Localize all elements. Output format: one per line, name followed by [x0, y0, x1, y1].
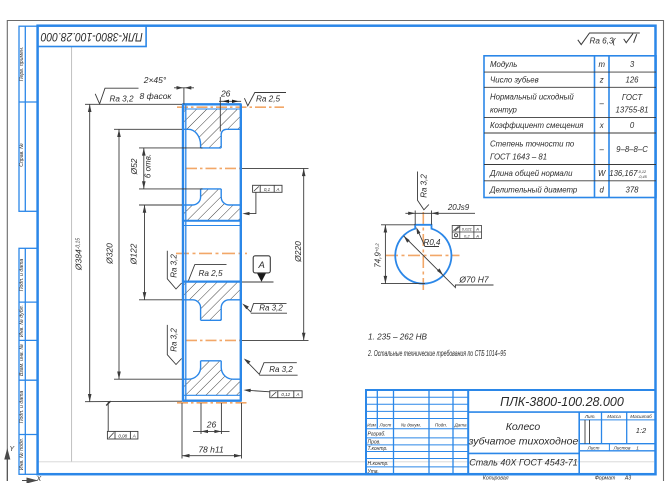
svg-text:Ra 3,2: Ra 3,2 [170, 328, 179, 352]
svg-text:Лист: Лист [587, 445, 600, 450]
svg-text:X: X [36, 476, 42, 483]
svg-text:378: 378 [625, 186, 639, 195]
svg-text:Дата: Дата [453, 422, 467, 427]
svg-text:6 отв.: 6 отв. [144, 154, 153, 178]
svg-text:26: 26 [220, 89, 231, 99]
svg-text:Утв.: Утв. [368, 469, 379, 475]
svg-text:Листов: Листов [613, 445, 631, 450]
svg-text:Коэффициент смещения: Коэффициент смещения [490, 121, 584, 130]
svg-text:9–8–8–С: 9–8–8–С [616, 145, 648, 154]
svg-text:Н.контр.: Н.контр. [368, 461, 389, 467]
svg-text:20Js9: 20Js9 [447, 203, 470, 212]
svg-text:3: 3 [630, 60, 635, 69]
svg-text:А: А [295, 392, 299, 397]
svg-text:А: А [258, 260, 265, 271]
svg-text:R0,4: R0,4 [424, 238, 441, 247]
svg-text:Нормальный исходный: Нормальный исходный [490, 93, 574, 102]
svg-text:№ докум.: № докум. [401, 422, 421, 427]
svg-text:ПЛК-3800-100.28.000: ПЛК-3800-100.28.000 [500, 395, 624, 409]
svg-text:Формат: Формат [595, 476, 616, 482]
svg-text:8 фасок: 8 фасок [140, 91, 173, 101]
svg-text:контур: контур [490, 106, 518, 115]
svg-text:m: m [598, 60, 605, 69]
svg-text:26: 26 [206, 420, 217, 430]
svg-text:–: – [599, 99, 605, 108]
svg-text:2. Остальные технические требо: 2. Остальные технические требования по С… [367, 349, 506, 358]
svg-text:78 h11: 78 h11 [198, 445, 224, 455]
svg-text:Ra 3,2: Ra 3,2 [269, 365, 293, 374]
svg-text:Подп.: Подп. [435, 422, 447, 427]
svg-text:Ra 3,2: Ra 3,2 [109, 95, 134, 104]
svg-text:Ø220: Ø220 [293, 241, 303, 263]
svg-text:0,12: 0,12 [281, 392, 290, 397]
svg-text:А: А [475, 227, 479, 232]
svg-text:2×45°: 2×45° [143, 75, 167, 85]
svg-text:Ra 3,2: Ra 3,2 [170, 254, 179, 278]
svg-text:Масштаб: Масштаб [630, 414, 652, 419]
svg-text:Ra 2,5: Ra 2,5 [256, 94, 281, 103]
svg-text:Взам. инв. №: Взам. инв. № [19, 344, 25, 376]
svg-text:0,2: 0,2 [464, 233, 470, 238]
svg-text:1:2: 1:2 [636, 426, 647, 435]
svg-text:1: 1 [636, 445, 639, 450]
svg-text:Разраб.: Разраб. [368, 432, 386, 438]
svg-text:А: А [275, 187, 279, 192]
svg-text:Т.контр.: Т.контр. [368, 446, 388, 452]
svg-text:Ø52: Ø52 [129, 158, 139, 175]
svg-text:Пров.: Пров. [368, 439, 381, 445]
svg-text:d: d [600, 186, 605, 195]
svg-text:Ra 3,2: Ra 3,2 [420, 174, 429, 198]
svg-text:Инв. № подл.: Инв. № подл. [19, 438, 25, 470]
svg-text:W: W [598, 169, 606, 178]
svg-text:ГОСТ 1643 – 81: ГОСТ 1643 – 81 [490, 153, 547, 162]
svg-text:Лист: Лист [378, 422, 391, 427]
svg-text:Степень точности по: Степень точности по [490, 140, 575, 149]
svg-text:Изм: Изм [367, 422, 376, 427]
svg-text:0: 0 [630, 121, 635, 130]
svg-text:А: А [475, 233, 479, 238]
svg-text:–: – [599, 145, 605, 154]
svg-text:ГОСТ: ГОСТ [622, 93, 643, 102]
svg-text:0,021: 0,021 [462, 227, 472, 232]
svg-text:Длина общей нормали: Длина общей нормали [489, 169, 573, 178]
svg-text:Подп. и дата: Подп. и дата [19, 391, 25, 424]
svg-text:Копировал: Копировал [483, 476, 509, 482]
svg-text:Масса: Масса [607, 414, 621, 419]
svg-text:ПЛК-3800-100.28.000: ПЛК-3800-100.28.000 [41, 30, 143, 44]
svg-text:Модуль: Модуль [490, 60, 517, 69]
svg-text:А: А [132, 433, 136, 438]
svg-text:Инв. № дубл.: Инв. № дубл. [19, 305, 25, 337]
svg-text:Ra 6,3: Ra 6,3 [589, 36, 614, 45]
svg-text:зубчатое тихоходное: зубчатое тихоходное [468, 435, 579, 447]
svg-text:Делительный диаметр: Делительный диаметр [489, 186, 578, 195]
svg-text:Ra 3,2: Ra 3,2 [259, 304, 283, 313]
svg-text:Ra 2,5: Ra 2,5 [198, 269, 223, 278]
svg-text:0,08: 0,08 [118, 433, 127, 438]
svg-text:Ø122: Ø122 [129, 243, 139, 265]
svg-text:126: 126 [625, 76, 639, 85]
svg-text:А3: А3 [624, 476, 631, 482]
svg-text:Лит.: Лит. [584, 414, 596, 419]
svg-text:z: z [599, 76, 604, 85]
svg-text:Число зубьев: Число зубьев [490, 76, 539, 85]
svg-text:Колесо: Колесо [506, 421, 541, 433]
svg-text:Подп. и дата: Подп. и дата [19, 259, 25, 292]
svg-text:0,1: 0,1 [264, 187, 271, 192]
svg-text:1. 235 – 262 НВ: 1. 235 – 262 НВ [368, 333, 428, 342]
svg-text:Сталь 40Х ГОСТ 4543-71: Сталь 40Х ГОСТ 4543-71 [469, 458, 577, 468]
svg-text:Ø320: Ø320 [105, 243, 115, 265]
svg-text:Справ. №: Справ. № [19, 143, 25, 167]
svg-text:Перв. примен.: Перв. примен. [19, 47, 25, 81]
svg-text:Ø70 Н7: Ø70 Н7 [458, 274, 489, 284]
svg-text:13755-81: 13755-81 [616, 106, 649, 115]
